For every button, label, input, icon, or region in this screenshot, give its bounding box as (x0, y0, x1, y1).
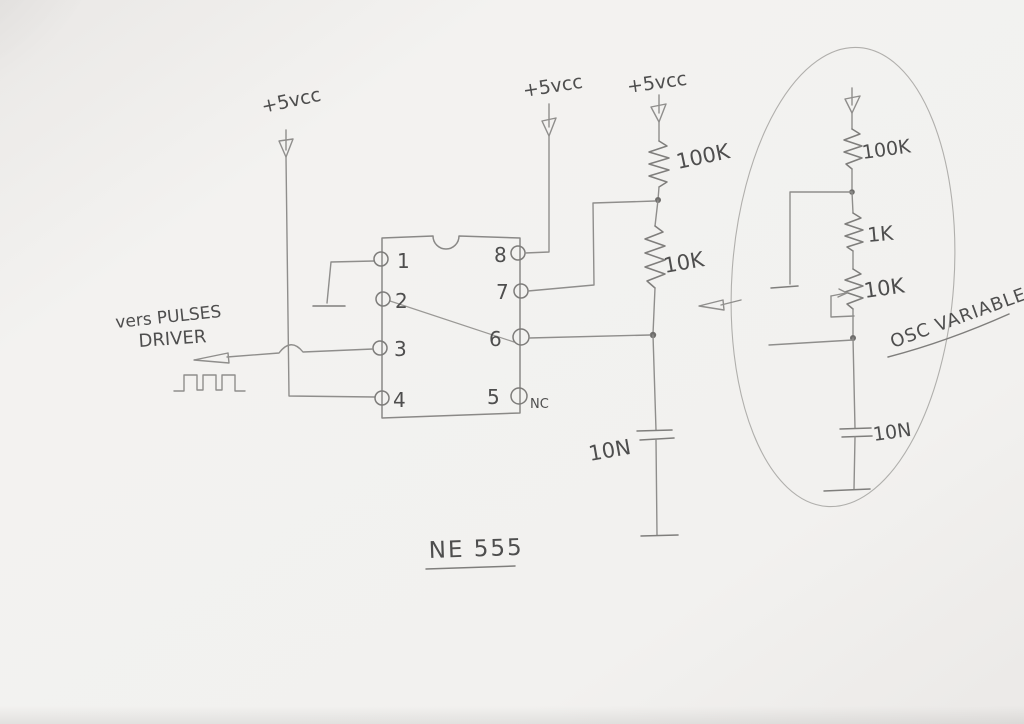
paper-texture (0, 0, 1024, 724)
ground-symbol-main (641, 535, 678, 536)
chip-name-label: NE 555 (428, 535, 524, 564)
pin2-number: 2 (395, 289, 408, 313)
resistor-1k-variant-label: 1K (866, 221, 895, 247)
pin5-number: 5 (487, 385, 500, 409)
scanned-schematic-page: +5vcc 1 2 3 4 8 7 6 5 NC (0, 0, 1024, 724)
ne555-schematic-sketch: +5vcc 1 2 3 4 8 7 6 5 NC (0, 0, 1024, 724)
pin3-number: 3 (394, 337, 407, 361)
pin7-number: 7 (496, 280, 509, 304)
pin8-number: 8 (494, 243, 507, 267)
pin5-nc-label: NC (530, 397, 549, 412)
wire-cap-to-ground-variant (854, 437, 855, 489)
paper-bottom-shadow (0, 706, 1024, 724)
pin4-number: 4 (393, 388, 406, 412)
pin1-number: 1 (397, 249, 410, 273)
wire-cap-to-ground (656, 440, 657, 535)
pin6-number: 6 (489, 327, 502, 351)
wire-junction-to-r1k (852, 192, 853, 213)
